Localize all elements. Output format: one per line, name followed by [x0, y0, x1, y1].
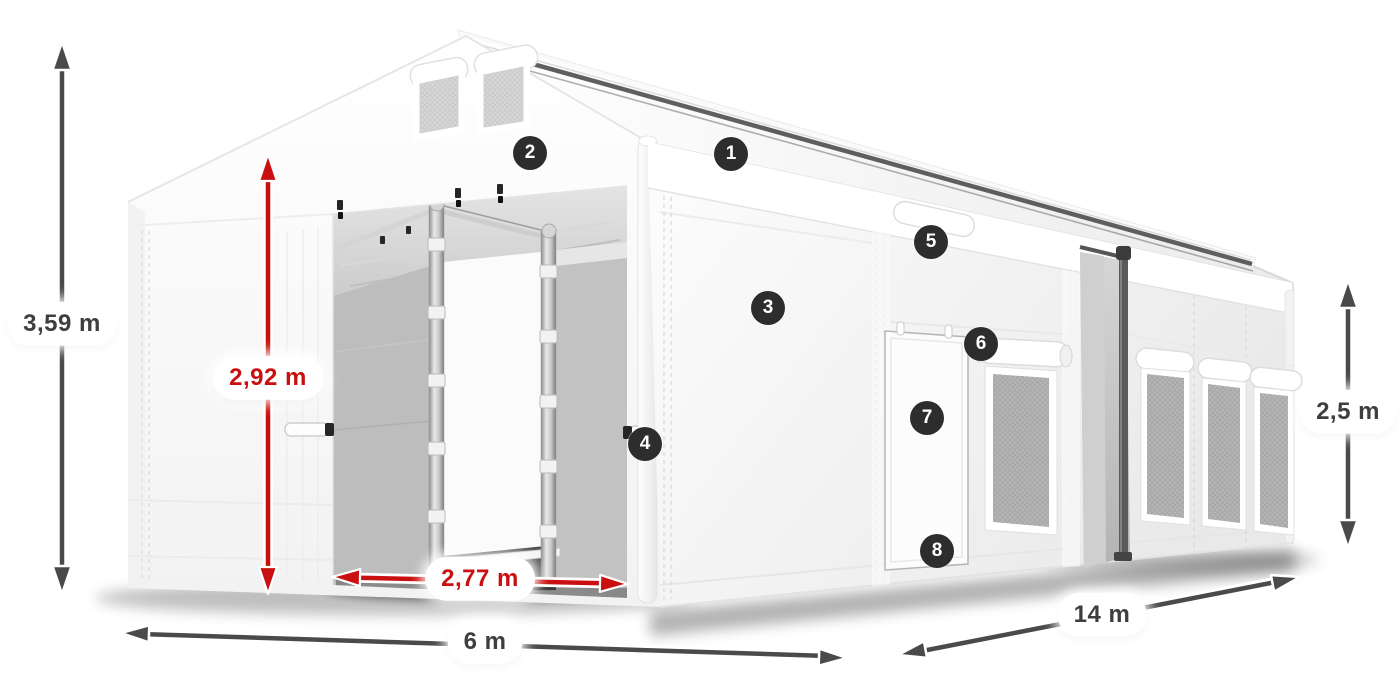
callout-badge-3[interactable]: 3: [751, 291, 785, 325]
interior-frame-pole: [428, 197, 445, 582]
callout-badge-4[interactable]: 4: [628, 427, 662, 461]
interior-right-wall: [556, 242, 627, 598]
door-hook: [945, 325, 952, 338]
callout-badge-6[interactable]: 6: [964, 327, 998, 361]
dimension-label-entrance-width: 2,77 m: [428, 560, 532, 598]
callout-badge-7[interactable]: 7: [910, 401, 944, 435]
callout-badge-2[interactable]: 2: [513, 136, 547, 170]
left-door-handle: [285, 423, 334, 436]
interior-frame-pole: [540, 224, 557, 585]
dimension-label-total-height: 3,59 m: [10, 305, 114, 343]
tent-dimension-diagram: 3,59 m 2,92 m 2,77 m 6 m 14 m 2,5 m 1 2 …: [0, 0, 1400, 700]
entrance-opening: [333, 184, 627, 598]
interior-left-wall: [333, 262, 443, 585]
gable-vent-left: [408, 56, 469, 141]
door-hook: [897, 322, 904, 335]
dimension-label-side-height: 2,5 m: [1303, 393, 1393, 431]
callout-badge-8[interactable]: 8: [920, 534, 954, 568]
dimension-label-entrance-height: 2,92 m: [216, 359, 320, 397]
gable-vent-right: [472, 43, 539, 134]
dimension-label-front-width: 6 m: [451, 623, 520, 661]
tent-illustration: [0, 0, 1400, 700]
callout-badge-1[interactable]: 1: [714, 137, 748, 171]
see-through-gap: [443, 252, 541, 585]
callout-badge-5[interactable]: 5: [914, 225, 948, 259]
dimension-label-side-length: 14 m: [1061, 596, 1144, 634]
open-side-bay: [1080, 246, 1132, 568]
side-door: [885, 322, 968, 570]
